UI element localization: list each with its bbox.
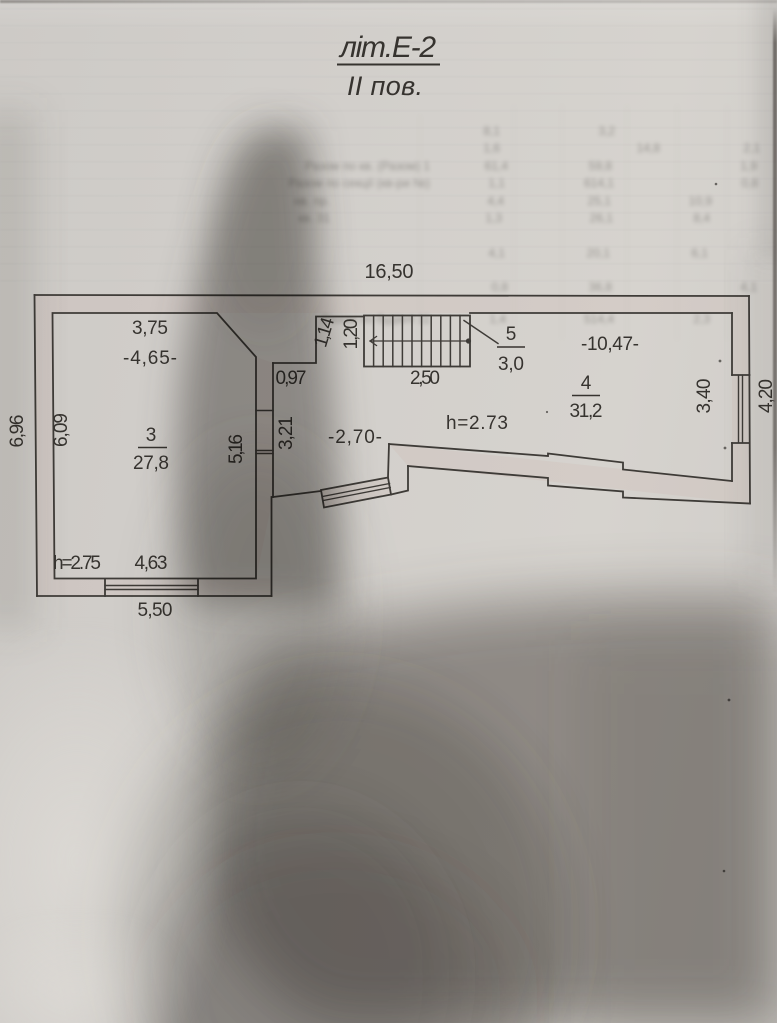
svg-text:3,75: 3,75 [132, 318, 168, 339]
svg-text:1,14: 1,14 [310, 315, 339, 350]
svg-text:-2,70-: -2,70- [328, 427, 382, 448]
svg-text:-4,65-: -4,65- [123, 348, 177, 369]
svg-text:2,50: 2,50 [410, 368, 440, 389]
svg-text:3,40: 3,40 [694, 379, 715, 414]
svg-text:4,63: 4,63 [135, 553, 168, 574]
svg-text:0,97: 0,97 [276, 368, 307, 389]
svg-text:лim.E-2: лim.E-2 [338, 31, 436, 64]
svg-text:h=2.73: h=2.73 [446, 413, 508, 434]
svg-text:5: 5 [506, 324, 517, 345]
svg-text:3,21: 3,21 [276, 416, 297, 450]
svg-text:5,16: 5,16 [226, 434, 247, 464]
svg-text:3: 3 [146, 425, 157, 446]
svg-text:6,09: 6,09 [51, 413, 72, 447]
svg-text:3,0: 3,0 [498, 354, 524, 375]
svg-text:II пов.: II пов. [347, 71, 423, 101]
svg-text:31,2: 31,2 [570, 401, 603, 422]
svg-text:4: 4 [581, 373, 592, 394]
svg-text:-10,47-: -10,47- [581, 334, 639, 355]
svg-text:6,96: 6,96 [7, 415, 28, 448]
svg-text:h=2.75: h=2.75 [53, 553, 101, 574]
svg-text:5,50: 5,50 [138, 600, 173, 621]
svg-text:1,20: 1,20 [341, 319, 362, 350]
svg-text:16,50: 16,50 [365, 261, 414, 283]
svg-text:4,20: 4,20 [756, 379, 777, 413]
svg-text:27,8: 27,8 [133, 453, 169, 474]
